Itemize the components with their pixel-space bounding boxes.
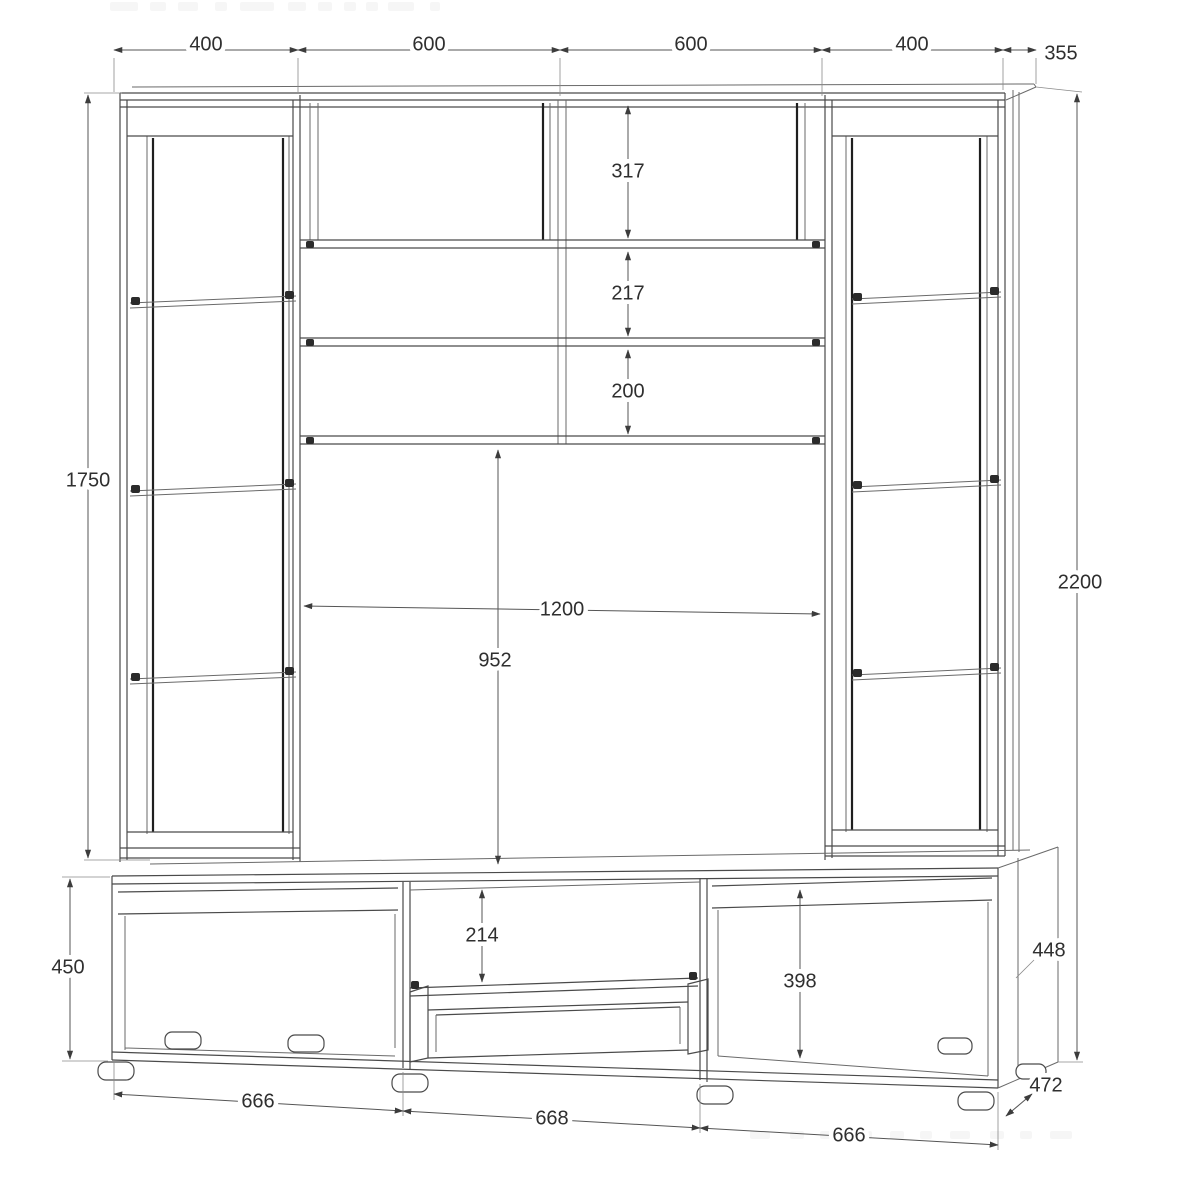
base-left-opening	[125, 914, 395, 1056]
base-cabinet	[98, 847, 1058, 1110]
dim-label-upper-gap-3: 200	[611, 380, 644, 402]
dim-upper-gaps: 317 217 200	[611, 106, 644, 434]
technical-drawing-page: 400 600 600 400 355 1750 450 2200 317 21…	[0, 0, 1200, 1197]
dim-label-niche-width: 1200	[540, 598, 585, 620]
right-display-tower	[825, 90, 1019, 860]
dim-label-niche-height: 952	[478, 649, 511, 671]
base-right-drawer	[712, 878, 992, 908]
dim-label-top-right-side: 400	[895, 33, 928, 55]
dim-label-top-left-center: 600	[412, 33, 445, 55]
base-center-niche	[410, 882, 708, 1062]
dim-label-center-gap: 214	[465, 924, 498, 946]
dim-label-upper-gap-1: 317	[611, 160, 644, 182]
base-left-drawer	[118, 888, 398, 914]
dim-bottom-widths: 666 668 666	[114, 1062, 998, 1150]
dim-center-gap: 214	[465, 890, 498, 982]
base-feet	[98, 1062, 1046, 1110]
dim-tower-height: 1750	[66, 93, 150, 860]
top-panel	[120, 84, 1036, 107]
wall-unit-drawing: 400 600 600 400 355 1750 450 2200 317 21…	[0, 0, 1200, 1197]
glass-shelf	[130, 479, 296, 496]
dim-label-base-height: 450	[51, 956, 84, 978]
left-display-tower	[120, 93, 300, 862]
dim-label-base-inner-height: 398	[783, 970, 816, 992]
base-right-opening	[718, 902, 988, 1076]
dim-label-top-left-side: 400	[189, 33, 222, 55]
glass-shelf	[130, 667, 296, 684]
dim-label-total-height: 2200	[1058, 571, 1103, 593]
dim-label-base-width-right: 666	[832, 1124, 865, 1146]
watermark-marks	[110, 2, 1072, 1139]
dim-label-upper-gap-2: 217	[611, 282, 644, 304]
dim-tv-niche: 1200 952	[304, 450, 820, 864]
center-upper-shelves	[300, 100, 825, 444]
dim-label-side-panel-height: 448	[1032, 939, 1065, 961]
dim-base-inner-height: 398	[783, 890, 816, 1058]
glass-shelf	[852, 663, 1001, 680]
dim-label-top-depth: 355	[1044, 42, 1077, 64]
dim-label-base-depth: 472	[1029, 1074, 1062, 1096]
dim-label-base-width-left: 666	[241, 1090, 274, 1112]
glass-shelf	[130, 291, 296, 308]
dim-label-top-right-center: 600	[674, 33, 707, 55]
dim-total-height: 2200	[1036, 87, 1102, 1062]
dim-base-height: 450	[51, 877, 110, 1061]
dim-label-tower-height: 1750	[66, 469, 111, 491]
glass-shelf	[852, 287, 1001, 304]
glass-shelf	[852, 475, 1001, 492]
dim-label-base-width-center: 668	[535, 1107, 568, 1129]
